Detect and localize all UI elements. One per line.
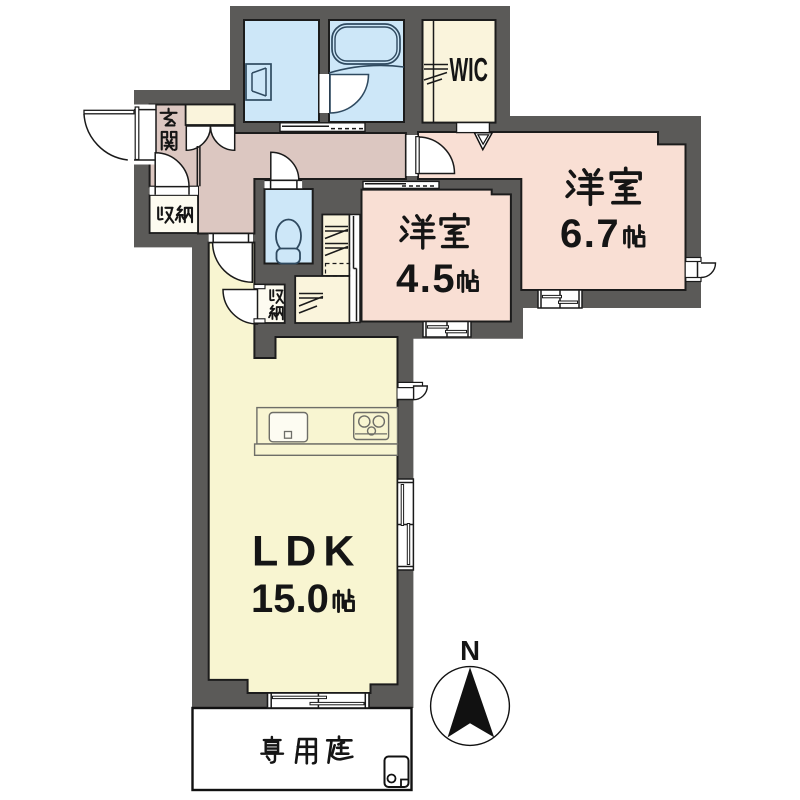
svg-text:6.7: 6.7 <box>560 212 620 256</box>
svg-text:4.5: 4.5 <box>396 257 456 301</box>
svg-text:WIC: WIC <box>450 51 488 89</box>
svg-text:15.0: 15.0 <box>251 577 329 621</box>
svg-text:N: N <box>460 635 480 666</box>
svg-text:LDK: LDK <box>252 528 361 576</box>
